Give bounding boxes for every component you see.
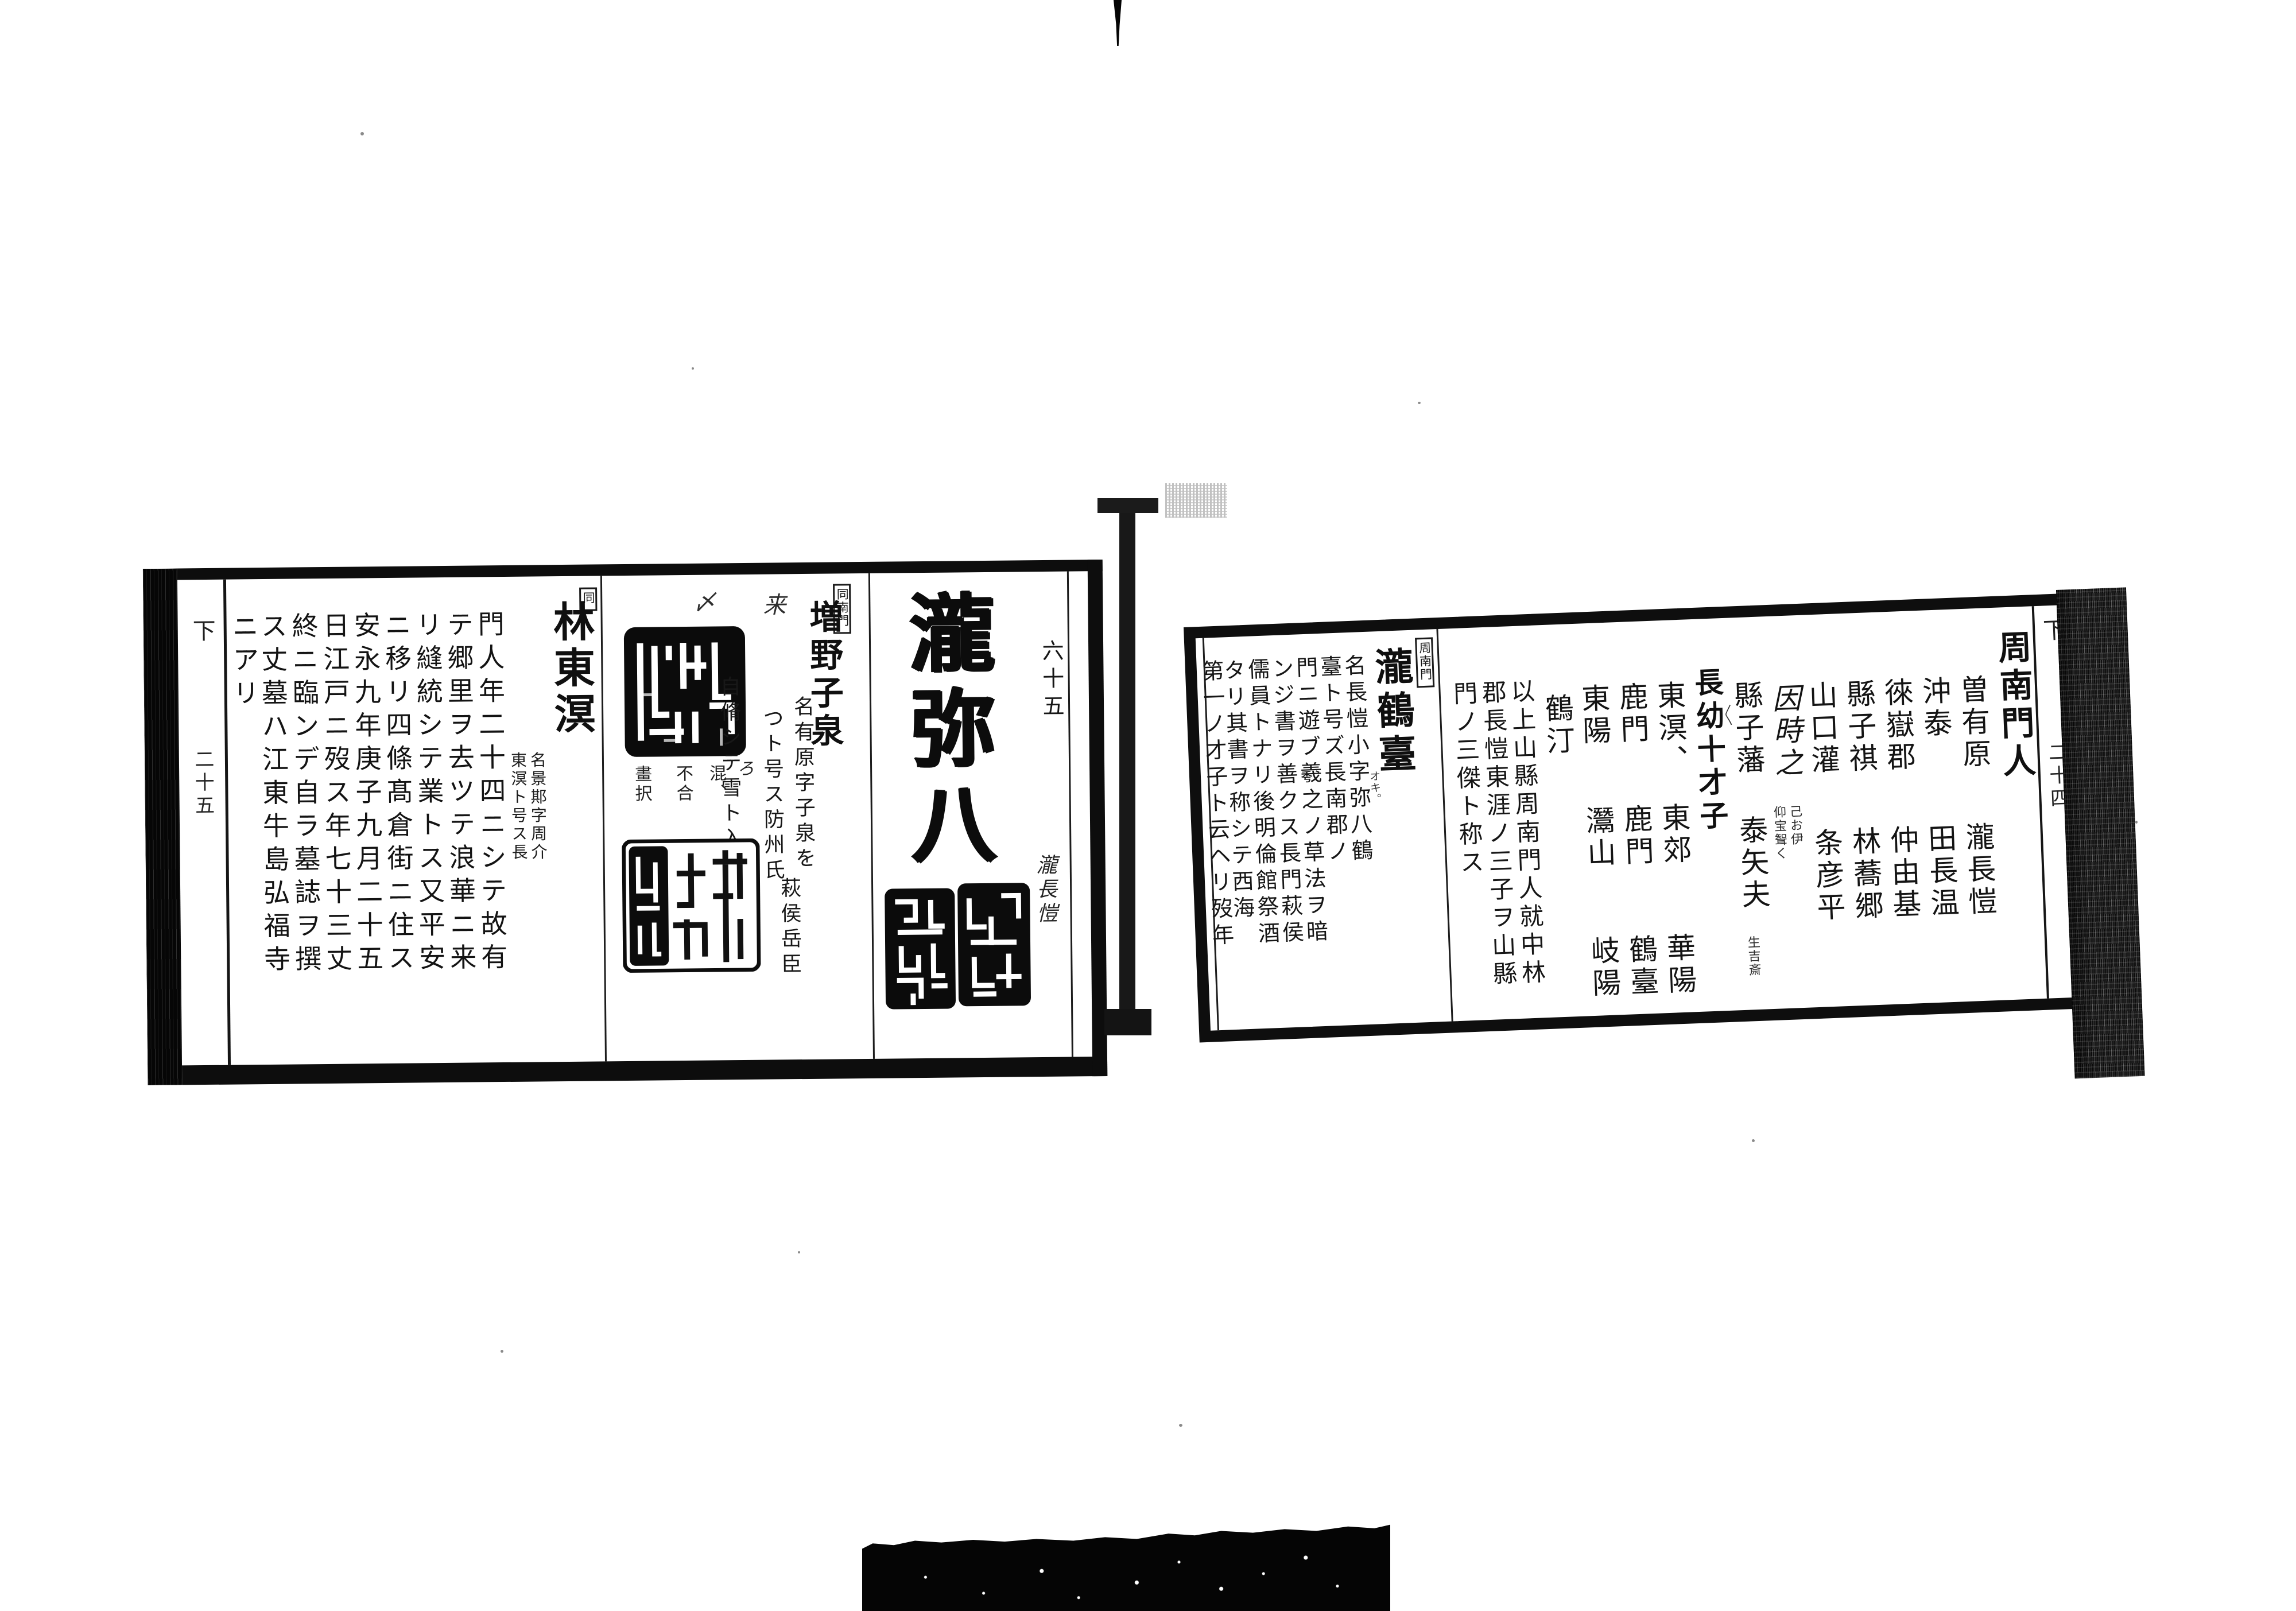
taki-seal-right: [956, 882, 1032, 1007]
hayashi-bio-line: ニアリ: [230, 612, 258, 712]
talent-name: 岐陽: [1588, 935, 1619, 1000]
right-page: 下 二十四 周南門人 曽有原 瀧長愷 沖泰 田長温 徠嶽郡 仲由基 縣子祺 林蕎…: [1184, 593, 2089, 1042]
disciple-name: 林蕎郷: [1849, 826, 1882, 923]
talent-name: 東溟、: [1654, 680, 1686, 778]
folio-number: 六十五: [1040, 639, 1062, 722]
annotation-column: 因時之: [1770, 683, 1802, 781]
talent-name: 華陽: [1664, 932, 1695, 997]
disciple-name: 仲由基: [1887, 824, 1919, 922]
section-divider: [600, 576, 607, 1061]
talent-name: 鶴汀: [1542, 693, 1573, 758]
hayashi-bio-line: テ郷里ヲ去ツテ浪華ニ来: [445, 611, 475, 977]
masuno-bio-line: つト号ス防州氏: [761, 707, 783, 884]
disciple-annotation: 縣子祺: [1844, 678, 1876, 776]
disciple-annotation: 沖泰: [1919, 676, 1950, 741]
masuno-seal-note: 混、: [707, 764, 725, 803]
disciple-name: 田長温: [1925, 823, 1957, 921]
section-label-taki: 周南門: [1418, 642, 1432, 682]
monjin-header: 周南門人: [1995, 630, 2034, 782]
hayashi-bio-line: 門人年二十四ニシテ故有: [476, 610, 506, 976]
annotation-small-left: 仰宝聟く: [1772, 805, 1787, 861]
signature-specimen: 瀧長愷: [1034, 854, 1056, 926]
dust-speck: [1179, 1424, 1182, 1427]
disciple-annotation: 山口灌: [1806, 680, 1838, 778]
disciple-annotation: 曽有原: [1957, 674, 1989, 771]
talent-name: 灊山: [1583, 805, 1614, 871]
center-fold-bar: [1119, 498, 1135, 1035]
monjin-closing-line: 門ノ三傑ト称ス: [1451, 681, 1483, 878]
taki-seal-left: [883, 887, 957, 1010]
page-number-left: 二十五: [193, 749, 213, 818]
disciple-name: 瀧長愷: [1963, 821, 1995, 919]
dust-speck: [2135, 821, 2138, 824]
scan-canvas: 下 二十五 同 林東溟 名景𨛺字周介 東溟ト号ス長 門人年二十四ニシテ故有 テ郷…: [0, 0, 2296, 1611]
bottom-scan-artifact: [862, 1522, 1390, 1611]
dust-speck: [798, 1251, 800, 1253]
specimen-mark: 〆: [691, 590, 713, 613]
masuno-seal-note: 不合: [674, 764, 692, 803]
talent-name: 鶴臺: [1626, 934, 1657, 999]
masuno-seal-note: 畫択: [633, 765, 650, 804]
hayashi-bio-line: ニ移リ四條髙倉街ニ住ス: [383, 611, 413, 977]
dust-speck: [1418, 402, 1421, 404]
specimen-mark: 来: [761, 592, 784, 615]
disciple-name: 条彦平: [1812, 827, 1844, 925]
annotation-small-right: 己お伊: [1788, 805, 1802, 847]
volume-marker-left: 下: [191, 619, 214, 642]
dust-speck: [360, 132, 364, 135]
masuno-bio-line: 名有原字子泉を: [792, 696, 814, 872]
disciple-name: 泰矢夫: [1736, 814, 1768, 912]
entry-name-taki: 瀧鶴臺: [1372, 646, 1415, 778]
left-page-frame: 下 二十五 同 林東溟 名景𨛺字周介 東溟ト号ス長 門人年二十四ニシテ故有 テ郷…: [177, 560, 1108, 1085]
hayashi-annotation-left: 東溟ト号ス長: [510, 752, 527, 862]
masuno-seal-note: ろ: [735, 759, 752, 779]
calligraphy-specimen: 瀧弥八: [902, 588, 990, 875]
inner-edge-rule: [1067, 572, 1073, 1057]
hayashi-annotation-right: 名景𨛺字周介: [529, 751, 546, 861]
section-label-box-taki: 周南門: [1415, 637, 1434, 688]
masuno-seal-bottom: [622, 839, 761, 973]
left-page: 下 二十五 同 林東溟 名景𨛺字周介 東溟ト号ス長 門人年二十四ニシテ故有 テ郷…: [143, 560, 1108, 1085]
hayashi-bio-line: 日江戸ニ歿ス年七十三丈: [321, 612, 351, 978]
top-edge-notch-artifact: [1111, 0, 1124, 46]
masuno-bio-line: 萩侯岳臣: [778, 877, 800, 978]
hayashi-bio-line: 安永九年庚子九月二十五: [352, 611, 382, 977]
fold-smudge-artifact: [1165, 483, 1227, 518]
entry-name-hayashi: 林東溟: [549, 600, 592, 739]
dust-speck: [692, 367, 694, 370]
hayashi-bio-line: 終ニ臨ンデ自ラ墓誌ヲ撰: [290, 612, 320, 978]
monjin-subheader: 長幼十才子: [1692, 667, 1727, 834]
hayashi-bio-line: リ縫統シテ業トス又平安: [414, 611, 444, 977]
hayashi-bio-line: ス丈墓ハ江東牛島弘福寺: [259, 612, 289, 979]
section-divider: [868, 573, 875, 1059]
dust-speck: [501, 1350, 503, 1353]
disciple-annotation: 縣子藩: [1731, 680, 1763, 778]
disciple-annotation: 徠嶽郡: [1882, 677, 1914, 774]
disciple-small-note: 生吉斎: [1746, 935, 1760, 977]
talent-name: 東郊: [1659, 802, 1690, 868]
talent-name: 東陽: [1578, 683, 1609, 748]
dust-speck: [1752, 1139, 1755, 1142]
talent-name: 鹿門: [1621, 803, 1652, 869]
talent-name: 鹿門: [1616, 681, 1647, 747]
